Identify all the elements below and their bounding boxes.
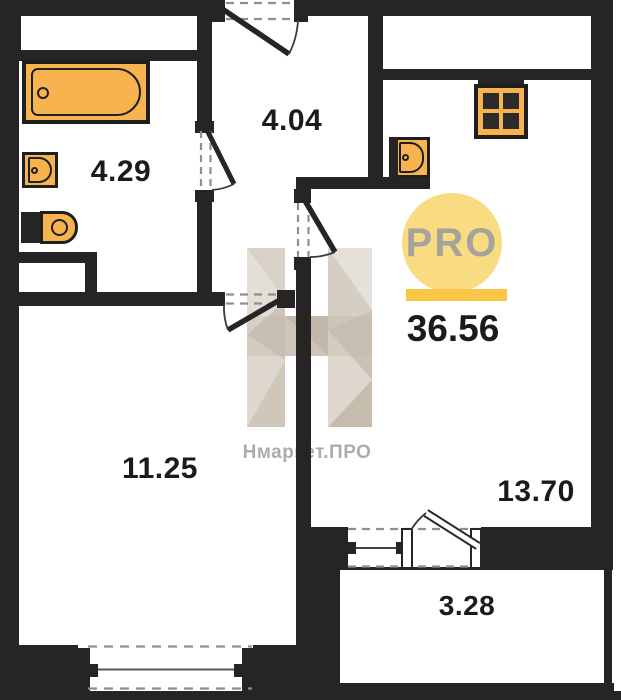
washbasin-icon — [22, 152, 58, 188]
stove-burner — [503, 93, 519, 109]
living-room-window — [88, 647, 252, 689]
area-label-balcony: 3.28 — [439, 590, 496, 622]
pro-logo-text: PRO — [406, 221, 499, 266]
stove-burner — [503, 113, 519, 129]
living-room-door — [224, 295, 285, 331]
stove-burner — [483, 113, 499, 129]
area-label-bathroom: 4.29 — [91, 155, 151, 189]
kitchen-sink-faucet — [402, 154, 409, 161]
total-area-label: 36.56 — [407, 308, 500, 350]
toilet-tank — [21, 212, 40, 243]
balcony-door — [402, 513, 481, 568]
stove-icon — [474, 84, 528, 139]
washbasin-faucet — [31, 167, 38, 174]
pro-logo-badge: PRO — [402, 193, 502, 293]
bathtub-icon — [22, 60, 150, 124]
kitchen-sink-icon — [389, 137, 430, 178]
kitchen-living-door — [298, 199, 335, 257]
area-label-living-room: 11.25 — [122, 452, 198, 486]
kitchen-sink-mount — [389, 137, 398, 178]
area-label-kitchen-living: 13.70 — [497, 475, 575, 509]
toilet-bowl — [51, 219, 68, 236]
floor-plan: Нмаркет.ПРО — [0, 0, 621, 700]
entrance-door — [218, 3, 298, 54]
bathroom-door — [201, 130, 234, 190]
toilet-icon — [40, 211, 78, 244]
stove-burner — [483, 93, 499, 109]
area-label-hallway: 4.04 — [262, 104, 322, 138]
bathtub-drain — [37, 87, 49, 99]
pro-logo-underline — [406, 289, 507, 301]
